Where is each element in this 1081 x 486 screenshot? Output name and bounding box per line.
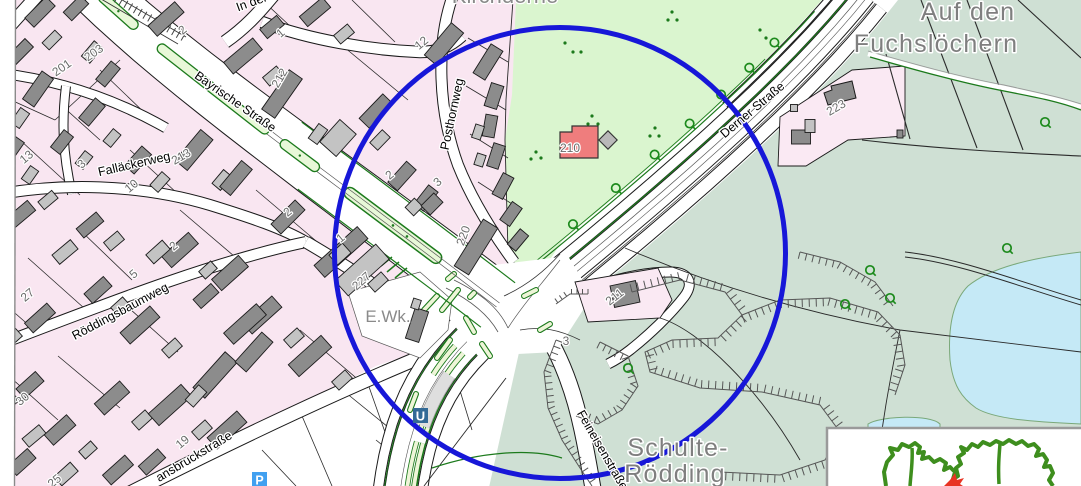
svg-text:P: P bbox=[255, 474, 263, 486]
svg-text:Auf den: Auf den bbox=[921, 0, 1016, 26]
svg-text:E.Wk.: E.Wk. bbox=[365, 307, 410, 326]
svg-text:U: U bbox=[416, 409, 425, 424]
svg-text:Kirchderne: Kirchderne bbox=[452, 0, 558, 8]
svg-text:Rödding: Rödding bbox=[624, 460, 726, 486]
svg-text:3: 3 bbox=[563, 334, 570, 348]
svg-text:210: 210 bbox=[560, 141, 580, 155]
svg-text:Schulte-: Schulte- bbox=[627, 434, 728, 462]
svg-text:Fuchslöchern: Fuchslöchern bbox=[854, 30, 1018, 58]
